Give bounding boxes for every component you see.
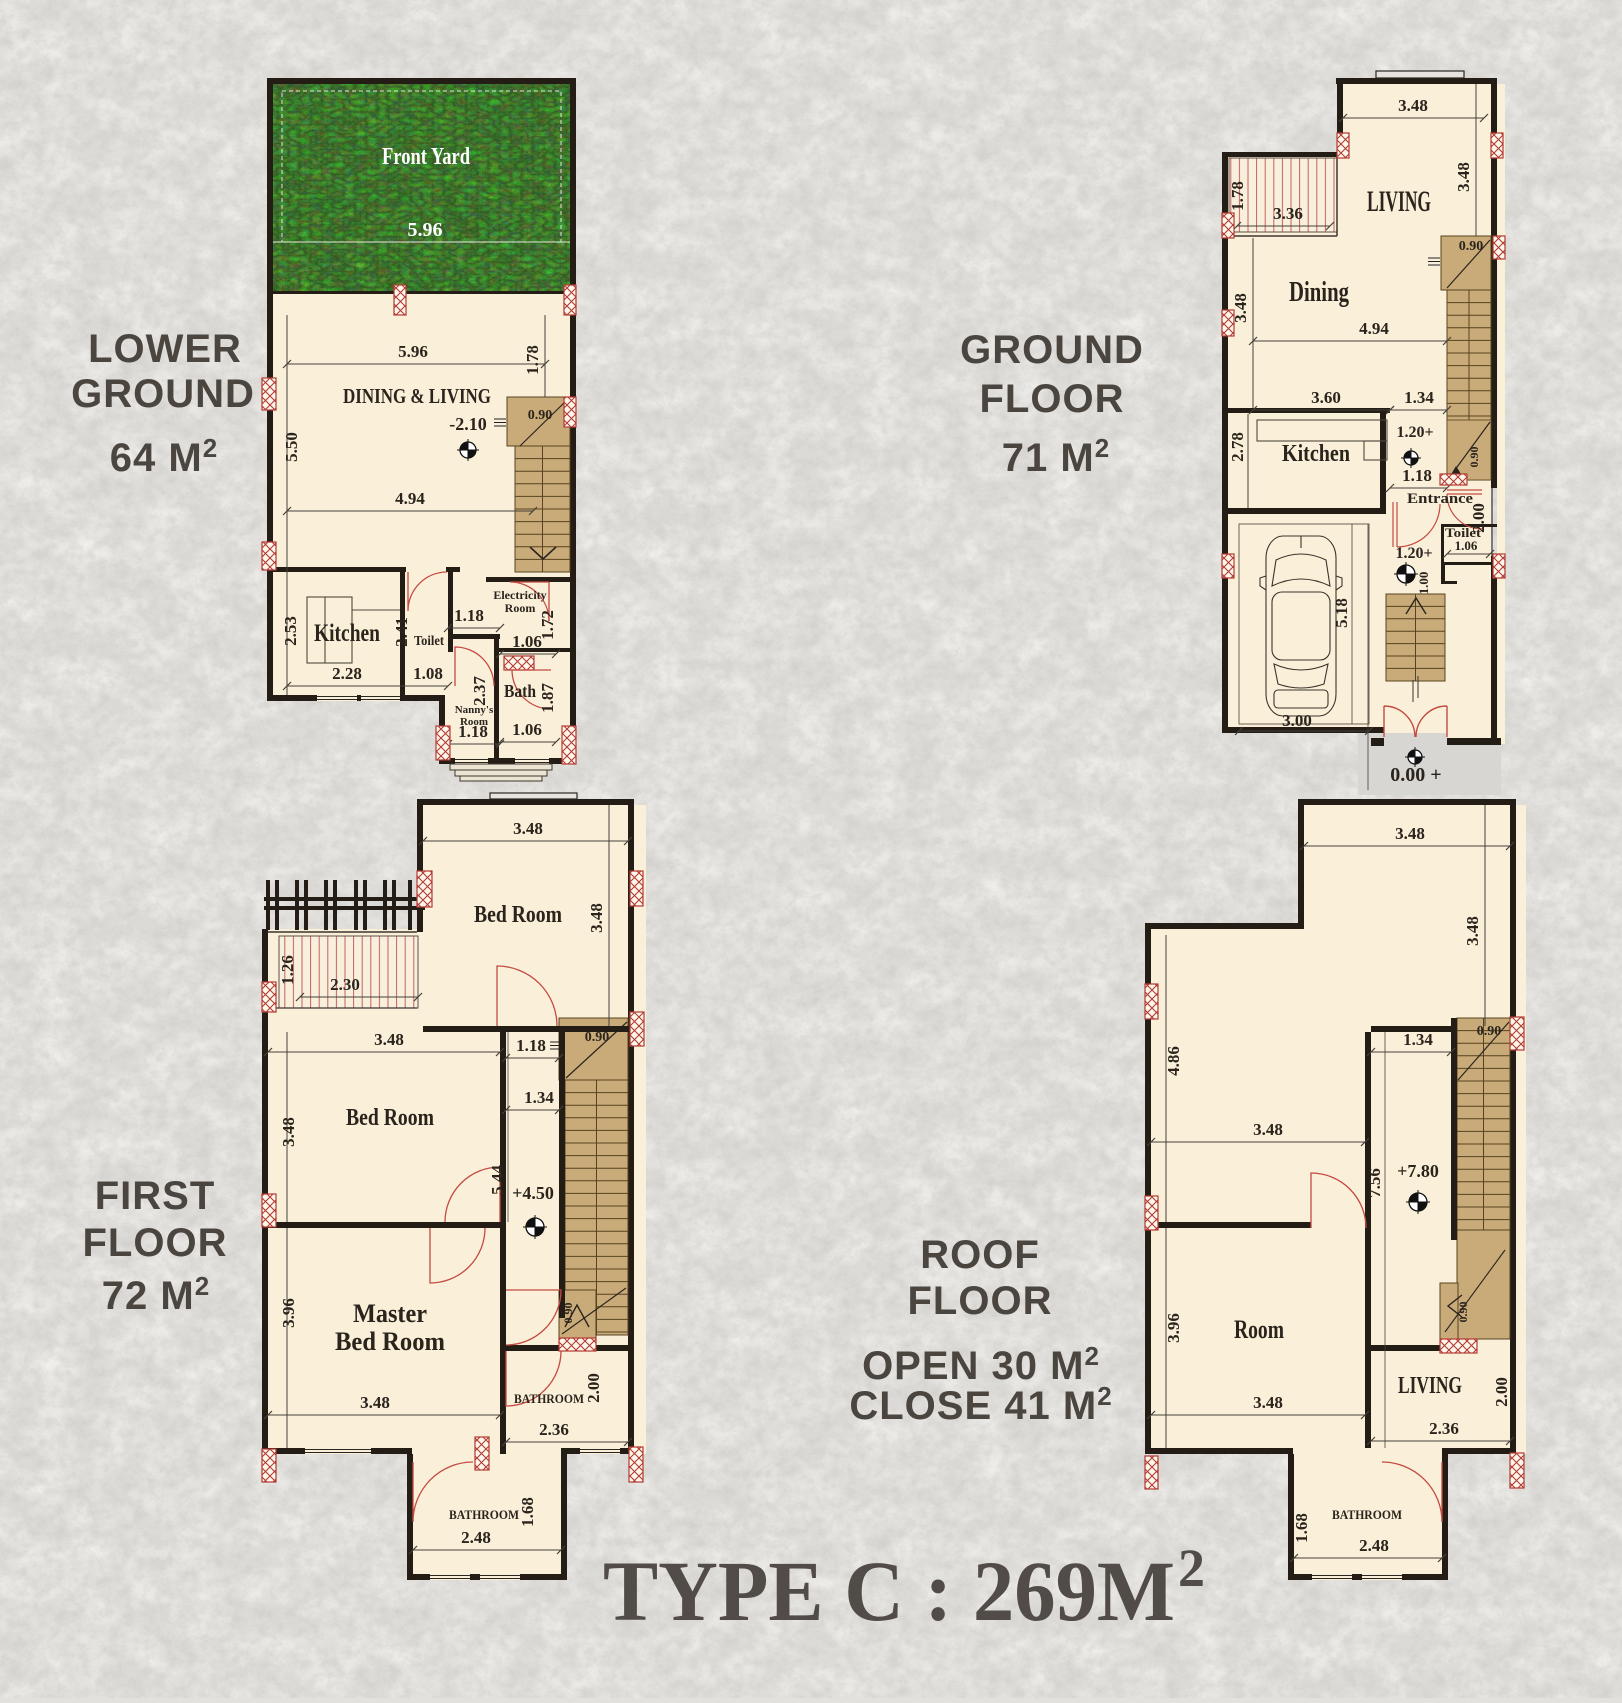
svg-text:3.48: 3.48 [513,819,543,838]
svg-text:2: 2 [1178,1538,1205,1598]
svg-text:3.48: 3.48 [1463,916,1482,946]
svg-text:64 M2: 64 M2 [110,433,218,480]
svg-text:2.53: 2.53 [281,616,300,646]
svg-text:2.48: 2.48 [461,1528,491,1547]
svg-text:FLOOR: FLOOR [908,1279,1053,1323]
svg-text:Entrance: Entrance [1407,491,1473,507]
svg-text:3.48: 3.48 [1454,162,1473,192]
svg-text:0.90: 0.90 [528,408,553,423]
svg-text:OPEN 30 M2: OPEN 30 M2 [862,1341,1100,1388]
svg-text:1.18: 1.18 [1402,466,1432,485]
svg-text:FIRST: FIRST [95,1174,216,1218]
svg-text:7.56: 7.56 [1365,1168,1384,1198]
svg-text:BATHROOM: BATHROOM [514,1392,584,1406]
svg-text:1.78: 1.78 [523,345,542,375]
svg-text:BATHROOM: BATHROOM [1332,1508,1402,1522]
svg-text:Room: Room [505,601,536,615]
svg-text:LIVING: LIVING [1367,185,1431,218]
svg-text:Room: Room [1234,1315,1284,1344]
svg-text:3.48: 3.48 [1395,824,1425,843]
svg-text:3.48: 3.48 [1253,1393,1283,1412]
svg-text:5.96: 5.96 [408,219,443,241]
svg-text:LOWER: LOWER [88,327,242,371]
svg-text:Toilet: Toilet [414,634,444,649]
svg-text:3.48: 3.48 [360,1393,390,1412]
svg-text:0.90: 0.90 [1477,1024,1502,1039]
svg-text:1.18: 1.18 [454,606,484,625]
svg-text:1.34: 1.34 [1404,388,1434,407]
svg-text:Bed Room: Bed Room [346,1105,434,1131]
svg-text:1.68: 1.68 [518,1497,537,1527]
svg-text:GROUND: GROUND [71,372,255,416]
svg-text:1.26: 1.26 [278,955,297,985]
svg-text:3.48: 3.48 [1253,1120,1283,1139]
svg-text:Bed Room: Bed Room [335,1327,445,1356]
svg-text:1.34: 1.34 [1403,1030,1433,1049]
svg-text:LIVING: LIVING [1398,1373,1462,1399]
svg-text:2.41: 2.41 [392,617,411,647]
svg-text:3.60: 3.60 [1311,388,1341,407]
svg-text:1.00: 1.00 [1416,572,1431,595]
svg-text:3.00: 3.00 [1282,711,1312,730]
svg-text:0.90: 0.90 [1467,447,1481,468]
svg-text:2.48: 2.48 [1359,1536,1389,1555]
svg-text:BATHROOM: BATHROOM [449,1508,519,1522]
svg-text:0.90: 0.90 [585,1030,610,1045]
svg-text:2.78: 2.78 [1228,432,1247,462]
svg-text:71 M2: 71 M2 [1002,433,1110,480]
svg-text:FLOOR: FLOOR [83,1221,228,1265]
svg-text:0.90: 0.90 [1459,239,1484,254]
svg-text:1.78: 1.78 [1228,181,1247,211]
svg-text:Electricity: Electricity [493,588,546,602]
svg-text:Bath: Bath [504,681,536,701]
svg-text:1.18: 1.18 [516,1036,546,1055]
svg-text:5.44: 5.44 [488,1165,507,1195]
svg-text:3.36: 3.36 [1273,204,1303,223]
svg-text:Front Yard: Front Yard [382,144,471,170]
svg-text:GROUND: GROUND [960,328,1144,372]
svg-text:+4.50: +4.50 [512,1183,554,1203]
svg-text:1.87: 1.87 [538,683,557,713]
svg-text:5.50: 5.50 [282,432,301,462]
svg-text:1.20+: 1.20+ [1396,424,1433,441]
svg-text:TYPE C : 269M: TYPE C : 269M [603,1543,1175,1639]
svg-text:Bed Room: Bed Room [474,902,562,928]
svg-text:Nanny's: Nanny's [455,704,494,716]
svg-text:0.00 +: 0.00 + [1390,764,1441,786]
svg-text:Master: Master [353,1299,427,1328]
svg-text:ROOF: ROOF [920,1233,1040,1277]
svg-text:1.20+: 1.20+ [1395,545,1432,562]
svg-text:4.94: 4.94 [1359,319,1389,338]
svg-text:3.48: 3.48 [279,1117,298,1147]
svg-text:5.96: 5.96 [398,342,428,361]
svg-text:3.48: 3.48 [587,903,606,933]
svg-text:0.90: 0.90 [1456,1302,1470,1323]
svg-text:1.08: 1.08 [413,664,443,683]
svg-text:Room: Room [460,716,488,728]
svg-text:3.48: 3.48 [374,1030,404,1049]
svg-text:Dining: Dining [1289,277,1349,308]
svg-text:1.06: 1.06 [512,720,542,739]
svg-text:5.18: 5.18 [1332,598,1351,628]
svg-text:3.96: 3.96 [279,1298,298,1328]
svg-text:DINING & LIVING: DINING & LIVING [343,384,491,408]
svg-text:Kitchen: Kitchen [1282,441,1350,467]
svg-text:2.00: 2.00 [1492,1377,1511,1407]
svg-text:+7.80: +7.80 [1397,1161,1439,1181]
svg-text:1.34: 1.34 [524,1088,554,1107]
svg-text:-2.10: -2.10 [449,414,487,434]
svg-text:2.37: 2.37 [470,676,489,706]
svg-text:2.00: 2.00 [584,1373,603,1403]
svg-text:72 M2: 72 M2 [102,1271,210,1318]
svg-text:2.36: 2.36 [539,1420,569,1439]
svg-text:Kitchen: Kitchen [314,620,380,647]
svg-text:1.06: 1.06 [1455,538,1478,553]
svg-text:CLOSE 41 M2: CLOSE 41 M2 [849,1381,1112,1428]
svg-text:4.94: 4.94 [395,489,425,508]
svg-text:2.28: 2.28 [332,664,362,683]
svg-text:2.30: 2.30 [330,975,360,994]
svg-text:3.48: 3.48 [1398,96,1428,115]
svg-text:2.36: 2.36 [1429,1419,1459,1438]
svg-text:4.86: 4.86 [1164,1046,1183,1076]
svg-text:1.72: 1.72 [538,610,557,640]
svg-text:FLOOR: FLOOR [980,377,1125,421]
svg-text:1.68: 1.68 [1292,1513,1311,1543]
svg-text:3.96: 3.96 [1164,1313,1183,1343]
